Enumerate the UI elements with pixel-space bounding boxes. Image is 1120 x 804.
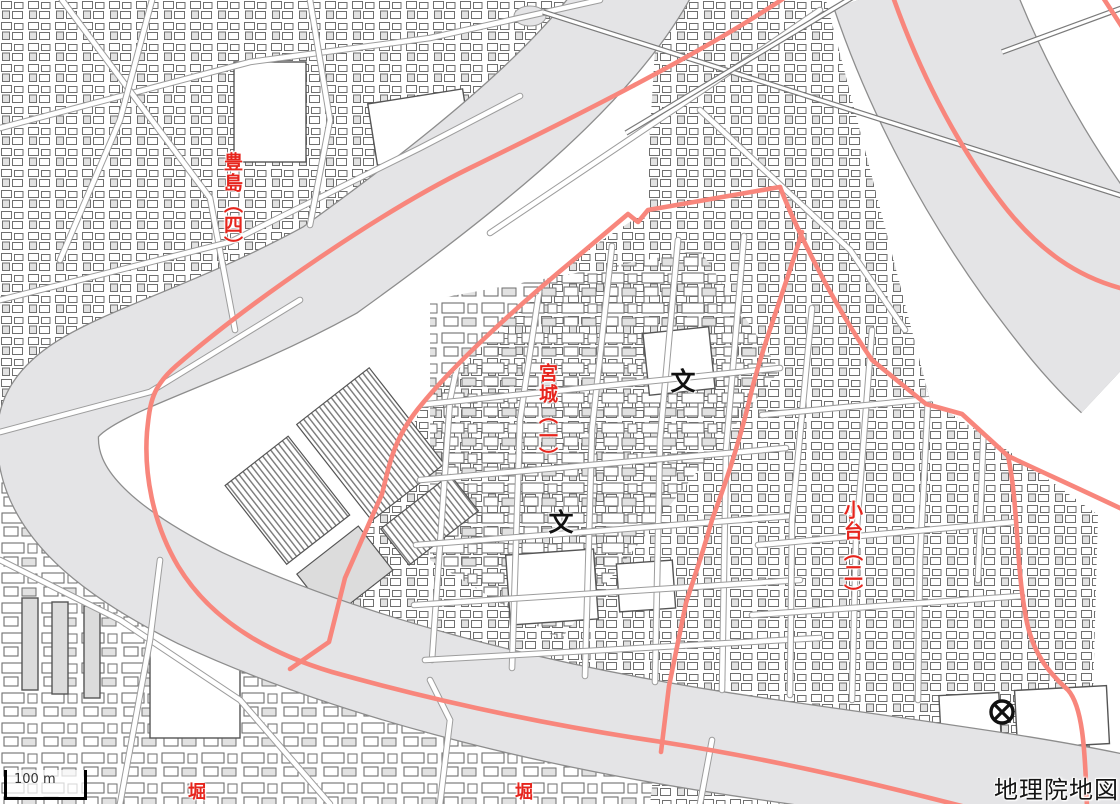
police-station-symbol (989, 699, 1015, 729)
attribution-link[interactable]: 地理院地図 (994, 777, 1120, 804)
school-symbol: 文 (671, 362, 696, 398)
district-label-odai-2: 小台（二） (842, 500, 861, 605)
district-label-hori-1: 堀 (186, 782, 204, 802)
scale-bar: 100 m (4, 770, 87, 800)
school-symbol: 文 (549, 503, 574, 539)
basemap-svg (0, 0, 1120, 804)
district-label-toshima-4: 豊島（四） (222, 152, 241, 257)
map-canvas[interactable]: 豊島（四）宮城（一）小台（二）堀堀 文文 100 m 地理院地図 (0, 0, 1120, 804)
district-label-hori-2: 堀 (513, 782, 531, 802)
district-label-miyagi-1: 宮城（一） (537, 363, 556, 468)
scale-bar-label: 100 m (14, 772, 56, 787)
